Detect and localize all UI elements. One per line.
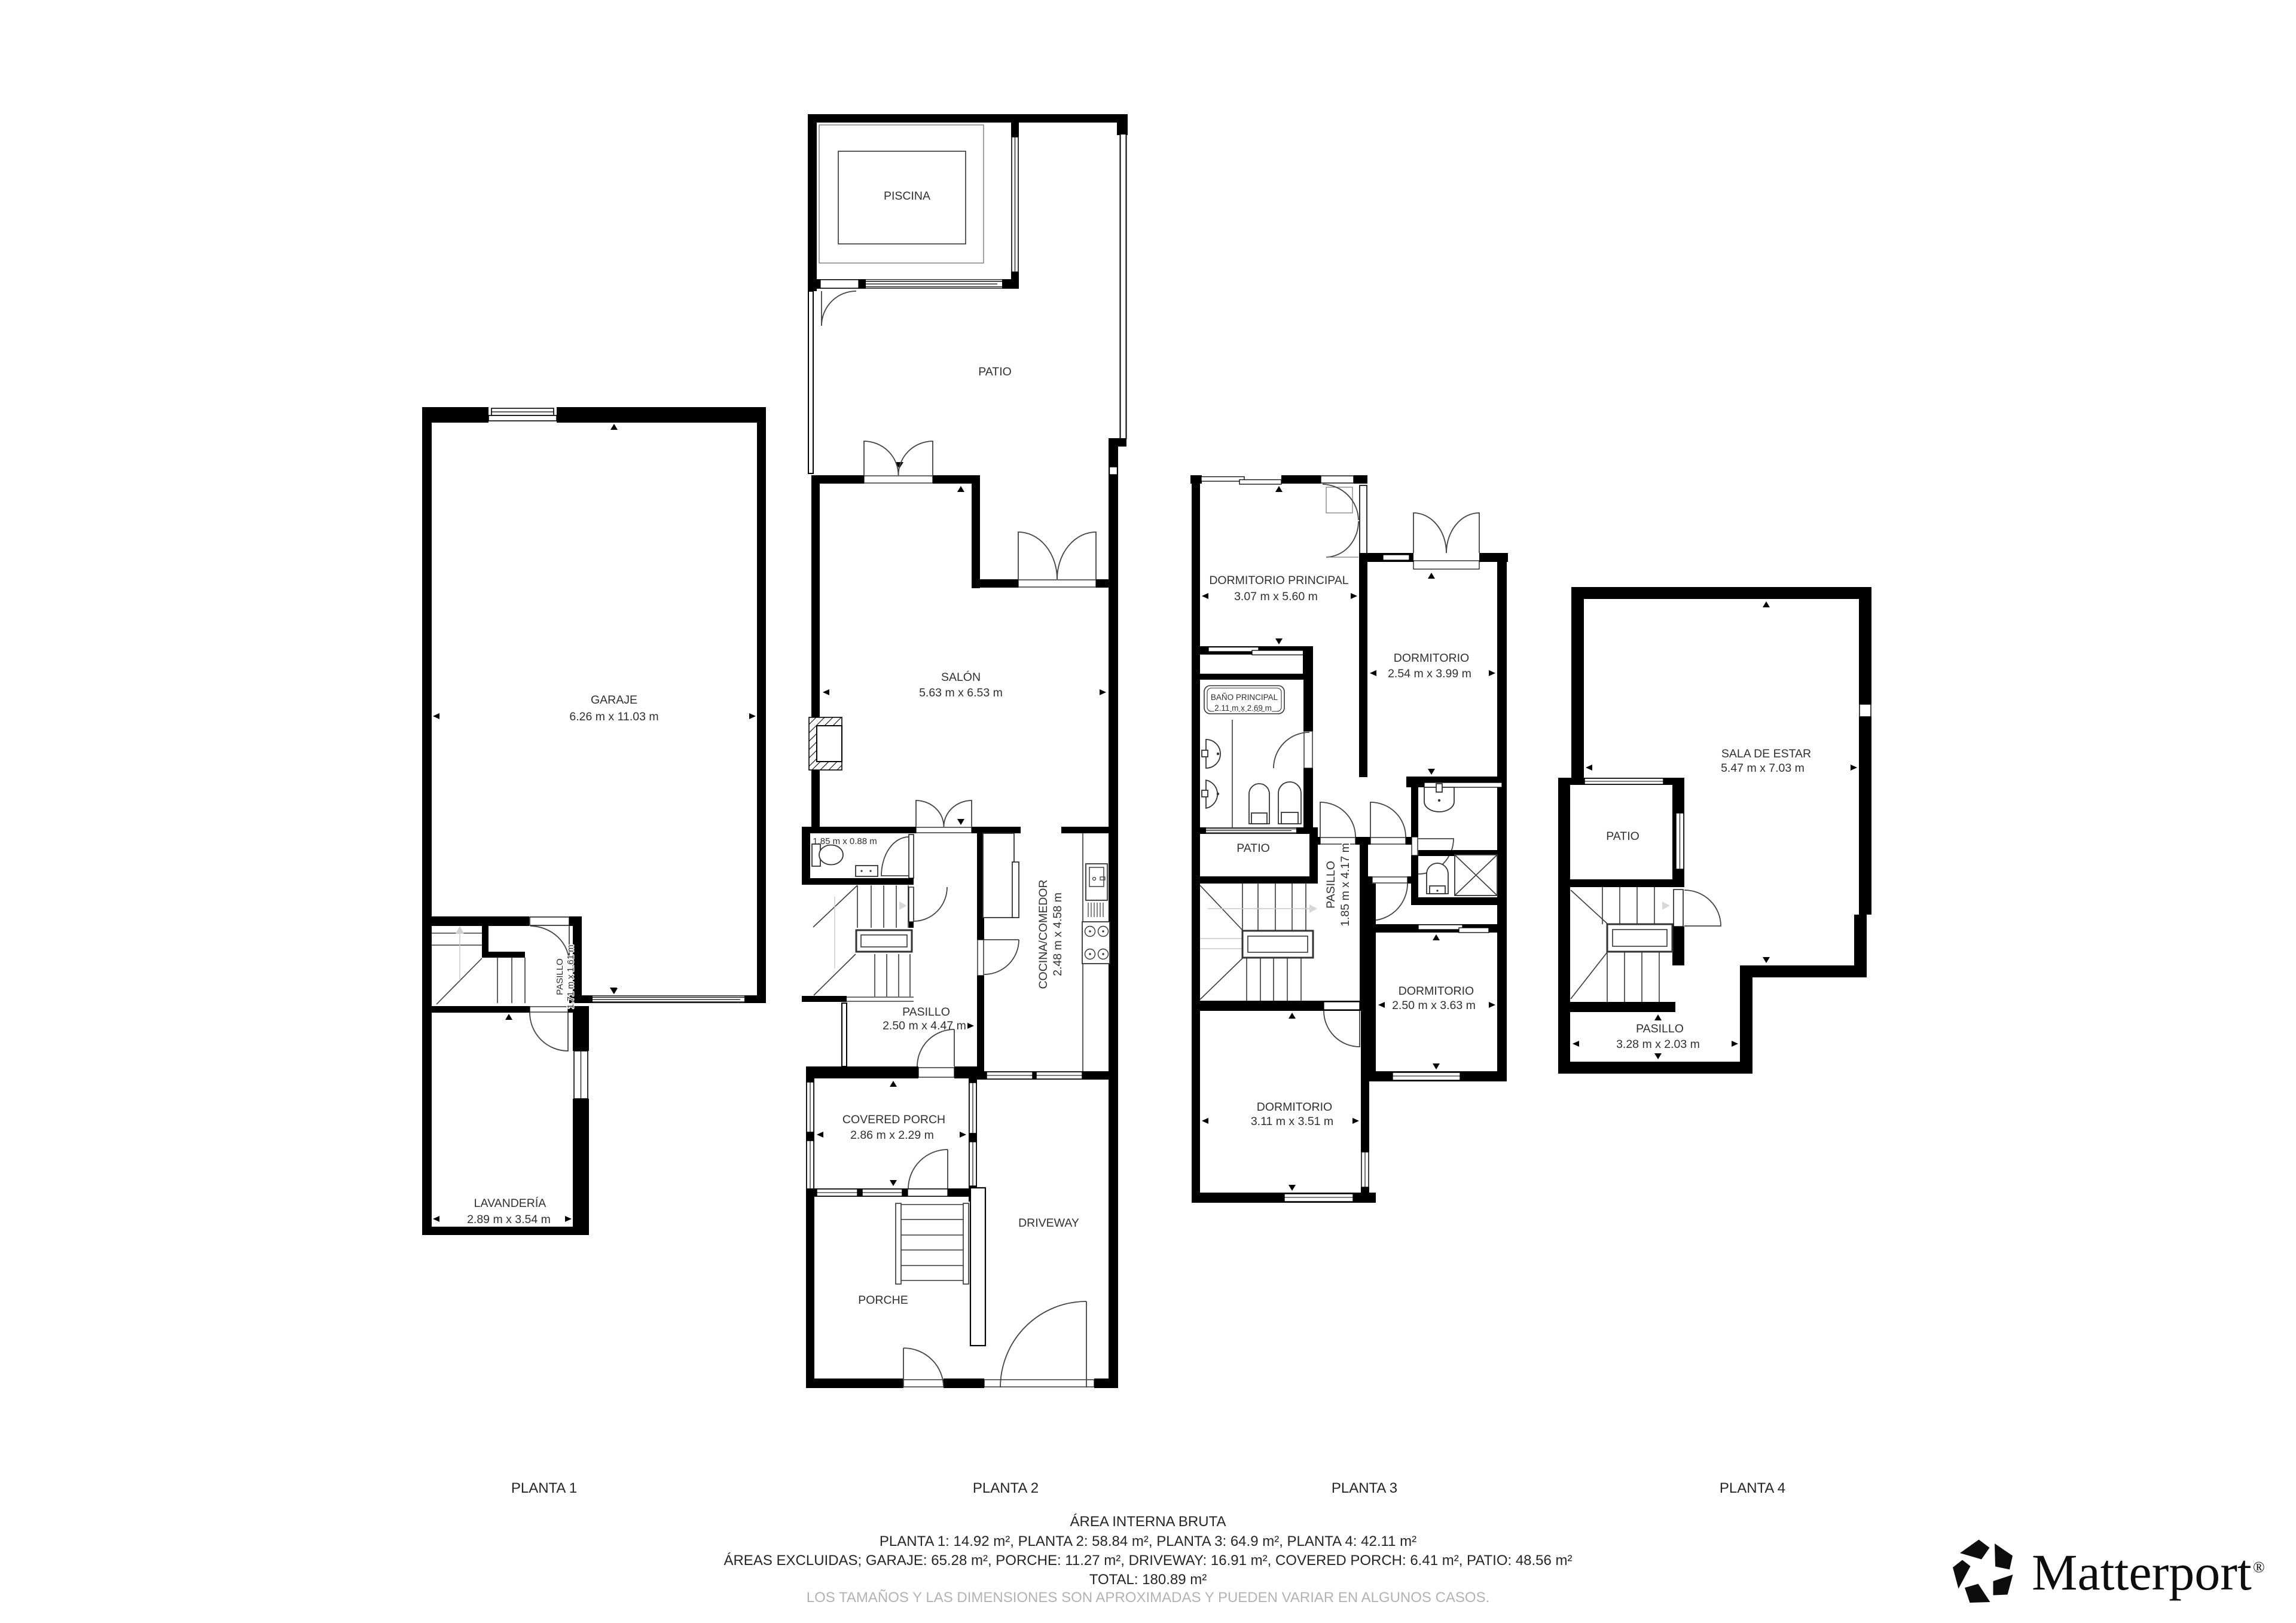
svg-text:3.11 m x 3.51 m: 3.11 m x 3.51 m	[1251, 1115, 1333, 1128]
svg-text:GARAJE: GARAJE	[591, 693, 637, 707]
svg-text:TOTAL: 180.89 m²: TOTAL: 180.89 m²	[1089, 1572, 1207, 1588]
svg-text:PLANTA 3: PLANTA 3	[1332, 1480, 1397, 1496]
svg-text:PLANTA 1: PLANTA 1	[511, 1480, 577, 1496]
svg-text:5.63 m x 6.53 m: 5.63 m x 6.53 m	[919, 686, 1003, 699]
svg-text:PASILLO: PASILLO	[1636, 1022, 1684, 1035]
svg-text:COCINA/COMEDOR: COCINA/COMEDOR	[1037, 879, 1050, 989]
svg-text:DRIVEWAY: DRIVEWAY	[1018, 1217, 1079, 1230]
svg-text:2.89 m x 3.54 m: 2.89 m x 3.54 m	[467, 1213, 551, 1226]
svg-text:COVERED PORCH: COVERED PORCH	[842, 1113, 945, 1126]
svg-text:PASILLO: PASILLO	[1324, 861, 1338, 909]
svg-text:3.28 m x 2.03 m: 3.28 m x 2.03 m	[1616, 1038, 1700, 1051]
svg-text:2.50 m x 4.47 m: 2.50 m x 4.47 m	[883, 1019, 966, 1032]
svg-text:2.48 m x 4.58 m: 2.48 m x 4.58 m	[1051, 893, 1064, 976]
svg-text:1.85 m x 4.17 m: 1.85 m x 4.17 m	[1339, 843, 1352, 927]
svg-text:PLANTA 1: 14.92 m², PLANTA 2:: PLANTA 1: 14.92 m², PLANTA 2: 58.84 m², …	[880, 1533, 1416, 1549]
svg-text:LAVANDERÍA: LAVANDERÍA	[474, 1196, 546, 1210]
svg-text:ÁREA INTERNA BRUTA: ÁREA INTERNA BRUTA	[1070, 1514, 1226, 1530]
svg-text:SALÓN: SALÓN	[941, 670, 981, 684]
svg-text:LOS TAMAÑOS Y LAS DIMENSIONES: LOS TAMAÑOS Y LAS DIMENSIONES SON APROXI…	[807, 1590, 1490, 1606]
svg-text:Matterport: Matterport	[2032, 1543, 2252, 1601]
svg-text:PISCINA: PISCINA	[884, 189, 930, 203]
svg-text:PASILLO: PASILLO	[555, 958, 565, 995]
svg-text:DORMITORIO: DORMITORIO	[1394, 652, 1469, 665]
svg-text:PATIO: PATIO	[1236, 842, 1270, 855]
svg-text:2.11 m x 2.69 m: 2.11 m x 2.69 m	[1214, 704, 1272, 713]
svg-text:PORCHE: PORCHE	[858, 1294, 908, 1307]
svg-text:DORMITORIO: DORMITORIO	[1257, 1101, 1332, 1114]
svg-text:2.86 m x 2.29 m: 2.86 m x 2.29 m	[850, 1129, 934, 1142]
svg-text:2.54 m x 3.99 m: 2.54 m x 3.99 m	[1388, 667, 1471, 680]
svg-text:2.50 m x 3.63 m: 2.50 m x 3.63 m	[1392, 999, 1476, 1012]
svg-text:DORMITORIO PRINCIPAL: DORMITORIO PRINCIPAL	[1209, 574, 1348, 587]
svg-text:PLANTA 4: PLANTA 4	[1720, 1480, 1785, 1496]
svg-text:6.26 m x 11.03 m: 6.26 m x 11.03 m	[569, 710, 658, 723]
svg-text:SALA DE ESTAR: SALA DE ESTAR	[1721, 747, 1811, 760]
svg-text:3.07 m x 5.60 m: 3.07 m x 5.60 m	[1234, 590, 1318, 603]
svg-text:1.71 m x 1.61 m: 1.71 m x 1.61 m	[566, 945, 576, 1009]
svg-text:DORMITORIO: DORMITORIO	[1399, 985, 1474, 998]
svg-text:BAÑO PRINCIPAL: BAÑO PRINCIPAL	[1211, 693, 1278, 702]
svg-text:PATIO: PATIO	[978, 365, 1012, 378]
svg-text:5.47 m x 7.03 m: 5.47 m x 7.03 m	[1721, 762, 1805, 775]
svg-text:ÁREAS EXCLUIDAS; GARAJE: 65.28: ÁREAS EXCLUIDAS; GARAJE: 65.28 m², PORCH…	[723, 1552, 1572, 1569]
svg-text:PASILLO: PASILLO	[902, 1005, 950, 1019]
svg-text:PATIO: PATIO	[1606, 830, 1639, 843]
svg-text:®: ®	[2253, 1558, 2265, 1576]
svg-text:PLANTA 2: PLANTA 2	[973, 1480, 1039, 1496]
svg-text:1.85 m x 0.88 m: 1.85 m x 0.88 m	[813, 836, 877, 846]
